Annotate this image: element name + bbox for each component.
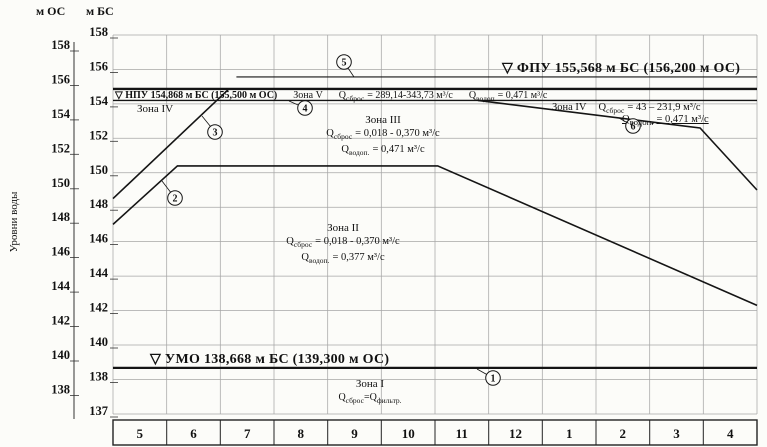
- fpu-level-annotation: ▽ ФПУ 155,568 м БС (156,200 м ОС): [502, 60, 740, 77]
- right-axis-tick-label: 137: [89, 404, 108, 418]
- curve-number-label: 2: [173, 194, 178, 205]
- right-axis-tick-label: 152: [89, 128, 108, 142]
- left-axis-tick-label: 152: [51, 141, 70, 155]
- curve-number-label: 3: [213, 128, 218, 139]
- left-axis-tick-label: 144: [51, 279, 71, 293]
- zone3-annotation: Зона III Qсброс= 0,018 - 0,370 м³/с Qвод…: [288, 114, 478, 159]
- right-axis-tick-label: 142: [89, 301, 108, 315]
- left-axis-tick-label: 150: [51, 176, 70, 190]
- zone5-label: Зона V: [293, 90, 323, 101]
- zone1-annotation: Зона I Qсброс=Qфильтр.: [305, 378, 435, 407]
- reservoir-dispatch-schedule-chart: 1581561541521501481461441421401381581561…: [0, 0, 767, 447]
- npu-level-annotation: ▽ НПУ 154,868 м БС (155,500 м ОС): [115, 90, 277, 101]
- right-axis-tick-label: 138: [89, 369, 108, 383]
- zone4-right-label: Зона IV: [552, 102, 587, 115]
- zone4-q-supply: Qводоп.= 0,471 м³/с: [622, 114, 709, 127]
- left-axis-tick-label: 140: [51, 348, 70, 362]
- month-label: 1: [566, 426, 573, 441]
- zone3-q-discharge: Qсброс= 0,018 - 0,370 м³/с: [288, 127, 478, 143]
- month-label: 9: [351, 426, 358, 441]
- zone5-q-discharge: Qсброс= 289,14-343,73 м³/с: [339, 90, 453, 103]
- month-label: 2: [620, 426, 627, 441]
- zone2-label: Зона II: [248, 222, 438, 235]
- month-label: 3: [673, 426, 680, 441]
- zone2-annotation: Зона II Qсброс= 0,018 - 0,370 м³/с Qводо…: [248, 222, 438, 267]
- month-label: 8: [298, 426, 305, 441]
- right-axis-tick-label: 156: [89, 59, 108, 73]
- umo-level-annotation: ▽ УМО 138,668 м БС (139,300 м ОС): [150, 351, 389, 368]
- right-axis-tick-label: 154: [89, 94, 109, 108]
- zone1-label: Зона I: [305, 378, 435, 391]
- month-label: 5: [137, 426, 144, 441]
- right-axis-tick-label: 150: [89, 163, 108, 177]
- month-label: 4: [727, 426, 734, 441]
- left-axis-title: м ОС: [36, 4, 65, 19]
- left-axis-tick-label: 138: [51, 382, 70, 396]
- left-axis-tick-label: 142: [51, 314, 70, 328]
- npu-annotation-row: ▽ НПУ 154,868 м БС (155,500 м ОС) Зона V…: [115, 90, 547, 103]
- left-axis-tick-label: 158: [51, 38, 70, 52]
- right-axis-tick-label: 148: [89, 197, 108, 211]
- zone4-left-label: Зона IV: [137, 103, 173, 115]
- curve-number-label: 4: [303, 104, 308, 115]
- curve-number-label: 1: [491, 374, 496, 385]
- month-label: 11: [456, 426, 468, 441]
- right-axis-tick-label: 144: [89, 266, 109, 280]
- month-label: 6: [190, 426, 197, 441]
- left-axis-tick-label: 148: [51, 210, 70, 224]
- zone3-label: Зона III: [288, 114, 478, 127]
- left-axis-tick-label: 146: [51, 245, 70, 259]
- zone2-q-supply: Qводоп.= 0,377 м³/с: [248, 251, 438, 267]
- right-axis-tick-label: 146: [89, 232, 108, 246]
- month-label: 12: [509, 426, 522, 441]
- month-label: 10: [402, 426, 415, 441]
- left-axis-tick-label: 154: [51, 107, 71, 121]
- curve-number-label: 5: [342, 58, 347, 69]
- right-axis-title: м БС: [86, 4, 114, 19]
- left-axis-tick-label: 156: [51, 72, 70, 86]
- zone5-q-supply: Qводоп= 0,471 м³/с: [469, 90, 548, 103]
- zone3-q-supply: Qводоп.= 0,471 м³/с: [288, 143, 478, 159]
- zone2-q-discharge: Qсброс= 0,018 - 0,370 м³/с: [248, 235, 438, 251]
- y-axis-label: Уровни воды: [8, 177, 22, 267]
- zone1-q-equation: Qсброс=Qфильтр.: [305, 391, 435, 407]
- right-axis-tick-label: 158: [89, 25, 108, 39]
- month-label: 7: [244, 426, 251, 441]
- right-axis-tick-label: 140: [89, 335, 108, 349]
